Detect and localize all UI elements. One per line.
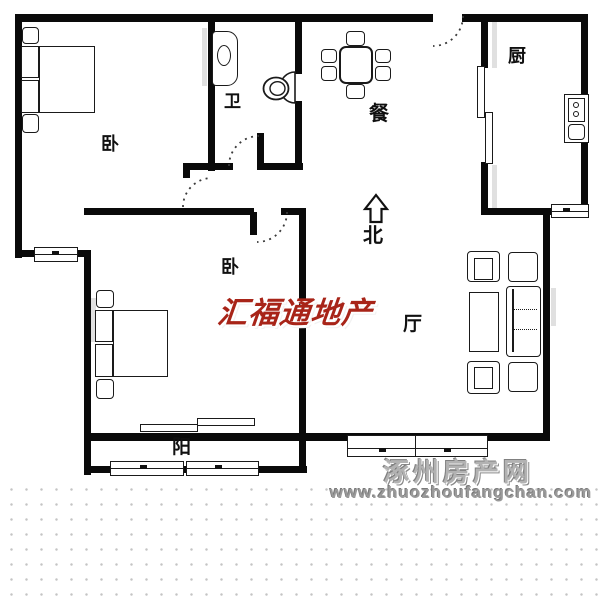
window-tick	[140, 465, 147, 469]
bed-pillow	[21, 46, 39, 78]
door-jamb-corridor	[183, 170, 190, 178]
watermark-site-url: www.zhuozhoufangchan.com	[330, 483, 592, 503]
nightstand	[96, 379, 114, 399]
door-arc-entry	[433, 16, 463, 46]
coffee-table	[469, 292, 499, 352]
bed-pillow	[21, 80, 39, 113]
dining-chair	[321, 49, 337, 63]
room-label-balcony: 阳	[172, 438, 191, 457]
window-kitchen	[551, 204, 589, 218]
window-tick	[563, 208, 570, 212]
wall-bathroom-bottom-a	[183, 163, 233, 170]
stove-burner	[573, 102, 579, 108]
nightstand	[22, 114, 39, 133]
wall-bathroom-right-bottom	[295, 101, 302, 170]
wall-shadow	[551, 288, 556, 326]
toilet-bowl-inner	[270, 82, 285, 96]
nightstand	[22, 27, 39, 44]
window-bedroom1	[34, 247, 78, 262]
wall-shadow	[202, 28, 207, 86]
bathroom-sink-basin	[217, 45, 231, 66]
bed	[113, 310, 168, 377]
window-midline	[552, 211, 588, 212]
window-midline	[187, 468, 258, 469]
wall-shadow	[492, 165, 497, 213]
window-midline	[111, 468, 183, 469]
bed-pillow	[95, 344, 113, 377]
room-label-bedroom-2: 卧	[221, 258, 239, 276]
sliding-door-balcony-panel	[140, 424, 198, 432]
window-midline	[416, 448, 487, 449]
wall-bathroom-right-top	[295, 14, 302, 74]
door-arc-bedroom2	[257, 212, 287, 242]
wall-bedroom2-left	[84, 250, 91, 475]
wall-kitchen-left-top	[481, 14, 488, 68]
sofa-front-edge	[512, 289, 514, 352]
window-tick	[52, 251, 59, 255]
north-arrow-icon	[365, 195, 387, 222]
room-label-bathroom: 卫	[224, 93, 241, 110]
door-arc-bedroom1	[183, 178, 212, 207]
compass-north-label: 北	[363, 226, 383, 246]
sliding-door-balcony-panel	[197, 418, 255, 426]
wall-bedroom2-top-left	[84, 208, 254, 215]
room-label-dining: 餐	[369, 104, 389, 124]
sofa-seam	[513, 309, 537, 310]
door-arc-bathroom	[229, 136, 259, 166]
floorplan-canvas: 卧 卫 餐 厨 卧 厅 阳 北 汇福通地产 涿州房产网 www.zhuozhou…	[0, 0, 602, 600]
wall-top-left	[15, 14, 433, 22]
kitchen-sink	[568, 124, 585, 140]
door-jamb-bathroom	[257, 133, 264, 170]
side-table	[508, 252, 538, 282]
bathroom-sink	[212, 31, 238, 86]
dining-chair	[321, 66, 337, 81]
wall-living-right	[543, 208, 550, 441]
window-balcony-2	[186, 461, 259, 476]
side-table	[508, 362, 538, 392]
wall-shadow	[492, 20, 497, 68]
dining-chair	[346, 31, 365, 46]
stove-burner	[573, 111, 579, 117]
door-jamb-bedroom2	[250, 212, 257, 235]
toilet-tank	[280, 72, 295, 103]
sliding-door-kitchen-panel	[477, 66, 485, 118]
dining-chair	[375, 66, 391, 81]
armchair-seat	[474, 258, 493, 280]
bed-pillow	[95, 310, 113, 342]
room-label-kitchen: 厨	[508, 47, 526, 65]
watermark-agency: 汇福通地产	[216, 288, 376, 332]
stove-burner-box	[568, 98, 585, 122]
window-tick	[215, 465, 222, 469]
window-balcony-1	[110, 461, 184, 476]
sliding-door-kitchen-panel	[485, 112, 493, 164]
dining-table	[339, 46, 373, 84]
bed	[39, 46, 95, 113]
toilet-bowl	[264, 78, 289, 100]
armchair-seat	[474, 367, 493, 389]
room-label-living: 厅	[403, 315, 422, 334]
sofa	[506, 286, 541, 357]
sofa-seam	[513, 329, 537, 330]
nightstand	[96, 290, 114, 308]
room-label-bedroom-1: 卧	[101, 135, 119, 153]
dining-chair	[375, 49, 391, 63]
dining-chair	[346, 84, 365, 99]
